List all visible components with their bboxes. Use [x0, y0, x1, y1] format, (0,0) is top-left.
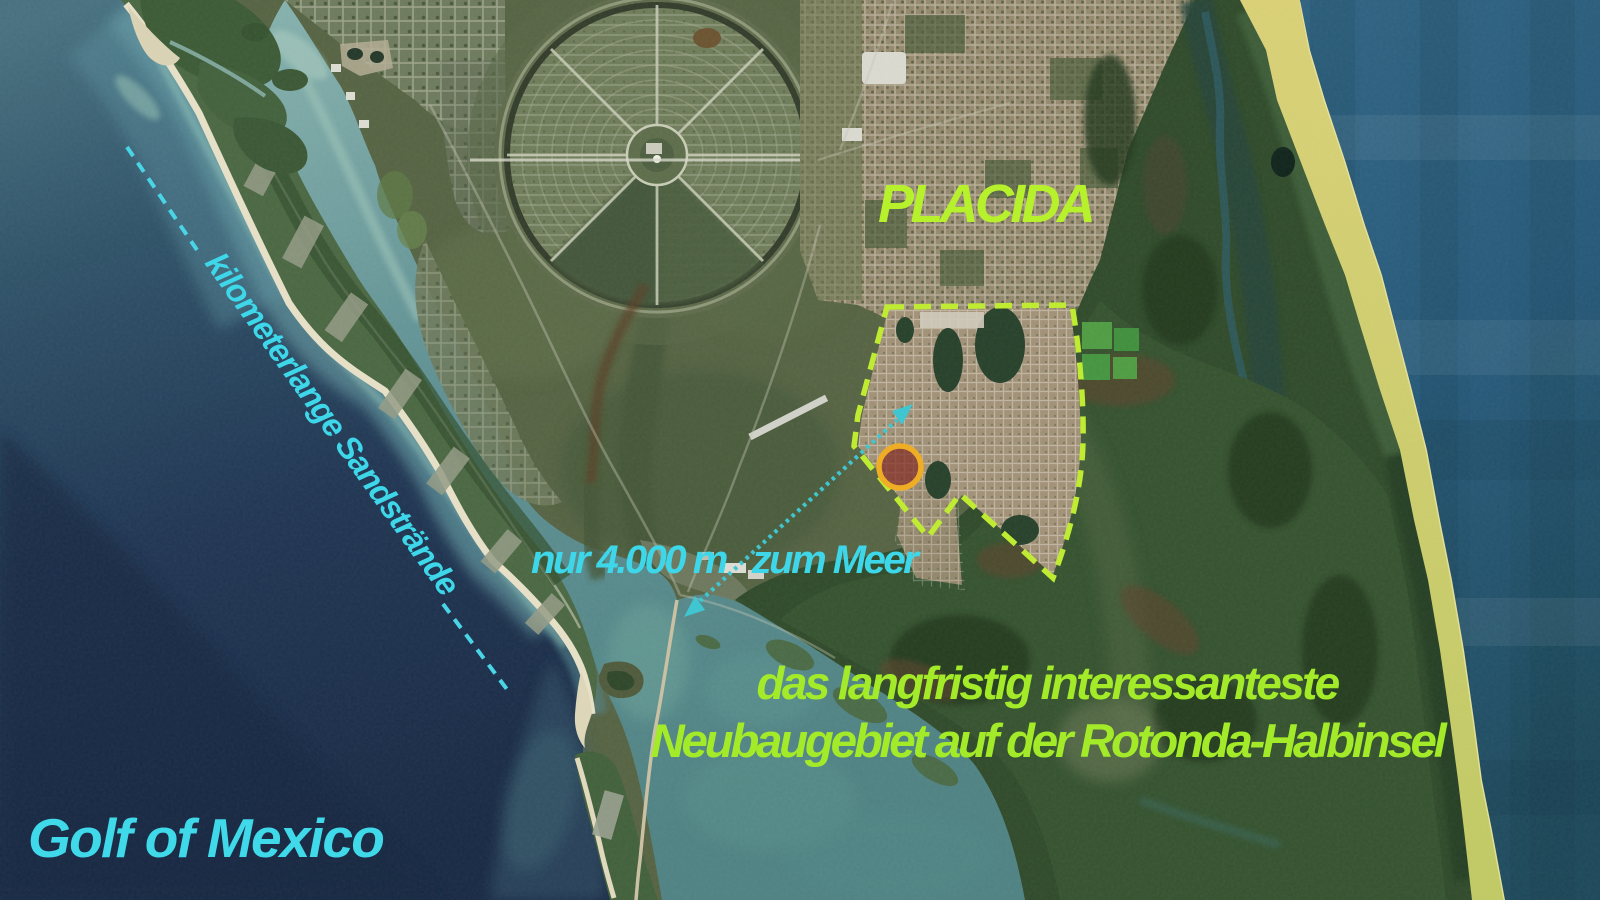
svg-text:Neubaugebiet auf der Rotonda-H: Neubaugebiet auf der Rotonda-Halbinsel	[650, 715, 1448, 768]
svg-text:das langfristig interessantest: das langfristig interessanteste	[757, 657, 1340, 709]
svg-text:nur 4.000 m zum Meer: nur 4.000 m zum Meer	[531, 538, 921, 582]
svg-text:PLACIDA: PLACIDA	[878, 174, 1093, 234]
svg-text:Golf of Mexico: Golf of Mexico	[28, 807, 383, 869]
